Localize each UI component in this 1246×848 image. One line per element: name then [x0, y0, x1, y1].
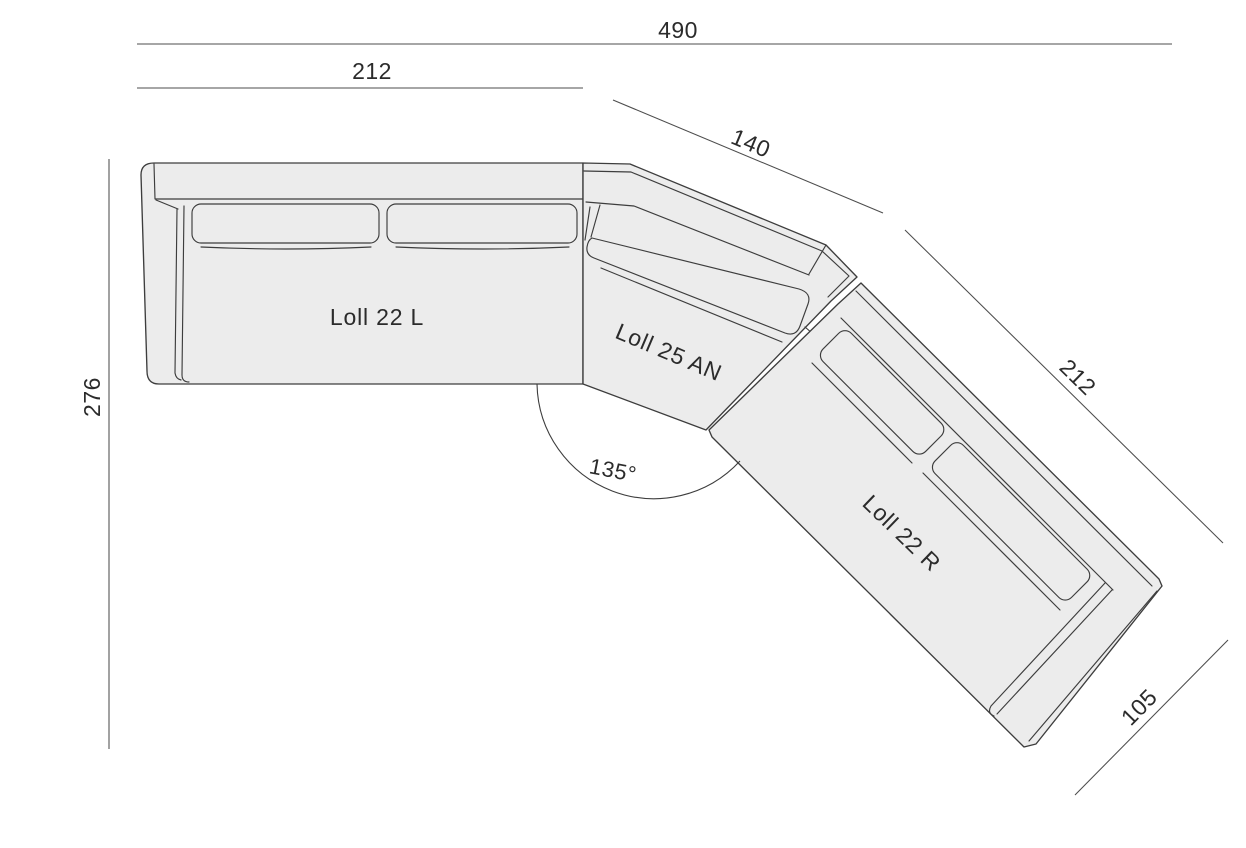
dim-overall-depth-label: 276 [79, 377, 105, 417]
sofa-configuration-diagram: 490 212 140 212 276 105 Loll [0, 0, 1246, 848]
dim-corner-width-label: 140 [728, 123, 775, 162]
dim-left-width-label: 212 [352, 58, 392, 84]
left-piece-outline [141, 163, 583, 384]
diagram-canvas: 490 212 140 212 276 105 Loll [0, 0, 1246, 848]
left-back-cushion-1 [192, 204, 379, 243]
sofa: Loll 22 L Loll 25 AN [141, 163, 1162, 747]
piece-label-loll-22-l: Loll 22 L [330, 304, 424, 330]
dim-right-depth-label: 105 [1116, 684, 1163, 731]
dim-overall-width-label: 490 [658, 17, 698, 43]
corner-angle-label: 135° [587, 453, 638, 487]
piece-loll-22-l: Loll 22 L [141, 163, 583, 384]
left-back-cushion-2 [387, 204, 577, 243]
dim-right-length-label: 212 [1055, 354, 1102, 400]
